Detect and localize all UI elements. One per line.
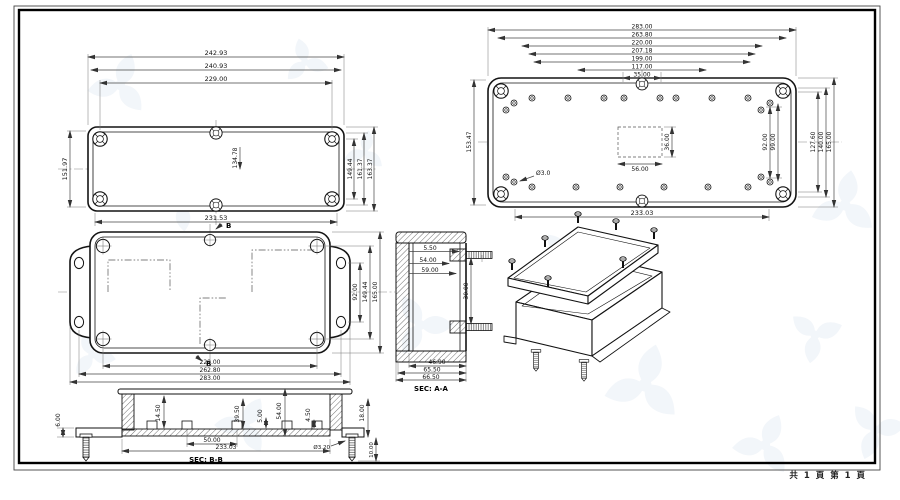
lid-top-view: 242.93 240.93 229.00 151.97 149.44 161.3…: [58, 49, 378, 226]
dim-aa-leader-1: 5.50: [423, 245, 437, 252]
section-aa-label: SEC: A-A: [414, 385, 449, 393]
dim-bb-inner-2: 39.50: [234, 405, 241, 422]
dim-bb-bottom-2: 233.03: [216, 444, 237, 451]
section-bb-label: SEC: B-B: [189, 456, 223, 464]
base-top-view: 36.00 56.00 Ø3.0 283.00 263.80 220.00 20…: [466, 24, 842, 222]
dim-bb-inner-5: 4.50: [305, 408, 312, 422]
dim-aa-screw-span: 30.00: [463, 282, 470, 299]
dim-aa-leader-2: 54.00: [419, 257, 436, 264]
dim-pocket-width: 56.00: [631, 166, 648, 173]
dim-screw-length: 10.00: [369, 442, 375, 458]
dim-base-top-2: 263.80: [632, 32, 653, 39]
dim-bb-bottom-1: 50.00: [203, 437, 220, 444]
dim-base-bottom: 233.03: [631, 209, 654, 217]
page-footer: 共 1 頁 第 1 頁: [789, 470, 866, 481]
dim-lid-left: 151.97: [61, 158, 69, 181]
dim-lid-top-1: 242.93: [205, 49, 228, 57]
dim-base-right-3: 127.60: [810, 131, 817, 152]
dim-bb-left: 6.00: [55, 413, 62, 427]
dim-lid-right-3: 163.37: [367, 158, 374, 179]
dim-bottomview-bottom-1: 229.00: [200, 359, 221, 366]
dim-bb-inner-4: 54.00: [276, 402, 283, 419]
dim-base-right-4: 140.00: [818, 131, 825, 152]
dim-base-top-6: 117.00: [632, 64, 653, 71]
dim-base-left: 153.47: [466, 131, 473, 152]
dim-lid-right-2: 161.37: [357, 158, 364, 179]
dim-base-top-1: 283.00: [632, 24, 653, 31]
dim-aa-leader-3: 59.00: [421, 267, 438, 274]
dim-base-right-1: 92.00: [762, 133, 769, 150]
dim-bb-right: 18.00: [359, 404, 366, 421]
dim-lid-top-3: 229.00: [205, 75, 228, 83]
cad-drawing: 242.93 240.93 229.00 151.97 149.44 161.3…: [0, 0, 900, 500]
dim-base-top-7: 35.00: [633, 72, 650, 79]
dim-bottomview-bottom-2: 262.80: [200, 367, 221, 374]
dim-base-right-5: 165.00: [826, 131, 833, 152]
dim-bottomview-right-3: 165.00: [372, 281, 379, 302]
dim-base-right-2: 99.00: [770, 133, 777, 150]
dim-base-top-3: 220.00: [632, 40, 653, 47]
dim-bottomview-right-2: 149.44: [362, 281, 369, 302]
drawing-sheet: 242.93 240.93 229.00 151.97 149.44 161.3…: [0, 0, 900, 500]
screw-diameter-callout: Ø3.20: [313, 444, 330, 451]
hole-diameter-callout: Ø3.0: [536, 170, 550, 177]
dim-aa-bottom-2: 65.50: [423, 367, 440, 374]
dim-lid-bottom: 231.53: [205, 214, 228, 222]
dim-bb-inner-3: 5.00: [257, 409, 264, 423]
dim-pocket-height: 36.00: [664, 133, 671, 150]
section-marker-top: B: [226, 222, 231, 230]
dim-bottomview-bottom-3: 283.00: [200, 375, 221, 382]
dim-base-top-5: 199.00: [632, 56, 653, 63]
dim-aa-bottom-3: 66.50: [422, 374, 439, 381]
dim-bb-inner-1: 14.50: [155, 404, 162, 421]
dim-base-top-4: 207.18: [632, 48, 653, 55]
dim-bottomview-right-1: 92.00: [352, 283, 359, 300]
dim-lid-center: 134.78: [232, 147, 239, 168]
dim-aa-bottom-1: 46.90: [428, 359, 445, 366]
dim-lid-right-1: 149.44: [347, 158, 354, 179]
dim-lid-top-2: 240.93: [205, 62, 228, 70]
